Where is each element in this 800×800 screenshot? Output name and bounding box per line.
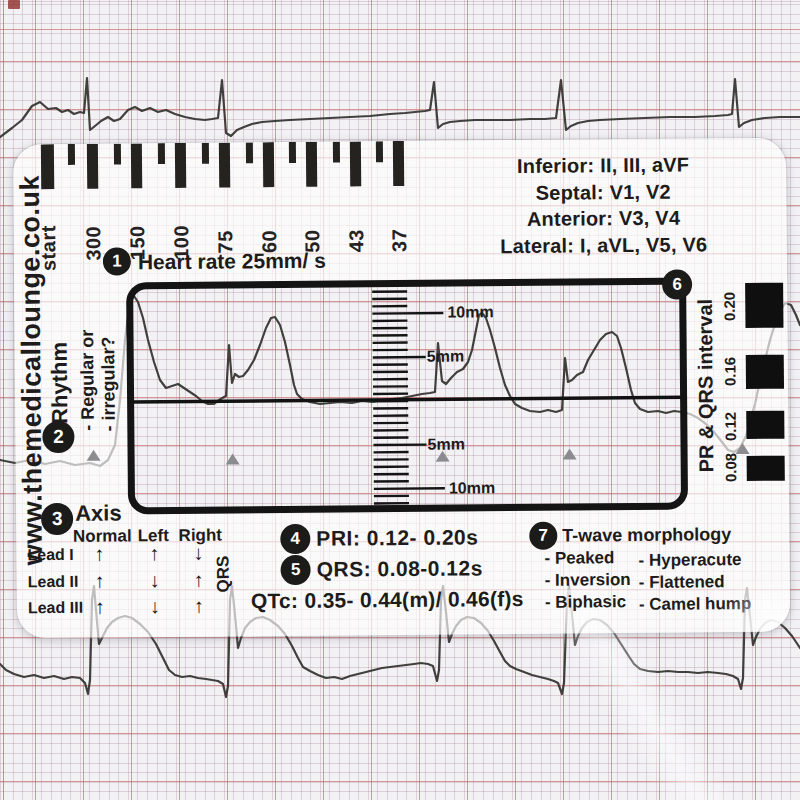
axis-arrow-l1-right: ↓ — [188, 541, 208, 565]
axis-row-lead1: Lead I — [27, 546, 73, 564]
qtc-label: QTc: 0.35- 0.44(m)/ 0.46(f)s — [251, 587, 524, 613]
twave-col1: - Peaked - Inversion - Biphasic — [544, 547, 631, 614]
axis-row-lead2: Lead II — [28, 573, 79, 591]
interval-scale-020: 0.20 — [719, 284, 739, 328]
lead-group-septal: Septal: V1, V2 — [438, 177, 768, 206]
interval-scale-012: 0.12 — [720, 404, 740, 448]
lead-group-inferior: Inferior: II, III, aVF — [438, 151, 768, 180]
step6-badge: 6 — [662, 269, 692, 299]
step2-badge: 2 — [42, 421, 74, 453]
window-scale-5mm-top: 5mm — [427, 347, 465, 365]
rhythm-option-irregular: - irregular? — [96, 319, 121, 447]
lead-group-lateral: Lateral: I, aVL, V5, V6 — [439, 230, 769, 259]
axis-arrow-l1-normal: ↑ — [89, 542, 109, 566]
ruler-tick-label: 300 — [82, 201, 105, 286]
pr-qrs-interval-label: PR & QRS interval — [692, 278, 720, 493]
axis-qrs-label: QRS — [212, 545, 235, 603]
axis-arrow-l2-left: ↓ — [145, 568, 165, 592]
axis-row-lead3: Lead III — [28, 599, 83, 617]
lead-group-anterior: Anterior: V3, V4 — [438, 204, 768, 233]
twave-title: T-wave morphology — [562, 524, 731, 546]
window-scale-5mm-bottom: 5mm — [427, 435, 465, 453]
twave-biphasic: - Biphasic — [545, 591, 631, 614]
ecg-ruler-card: www.themedicallounge.co.uk start30015010… — [12, 137, 791, 640]
step3-badge: 3 — [41, 503, 73, 535]
axis-arrow-l3-right: ↑ — [189, 594, 209, 618]
heart-rate-label: Heart rate 25mm/ s — [138, 247, 326, 277]
axis-arrow-l3-normal: ↑ — [90, 595, 110, 619]
ecg-ruler-photo: www.themedicallounge.co.uk start30015010… — [0, 0, 800, 800]
interval-blocks — [745, 283, 785, 481]
interval-scale-008: 0.08 — [721, 445, 741, 489]
ruler-tick-label: start — [37, 201, 60, 296]
paper-corner-mark — [8, 0, 20, 9]
axis-arrow-l2-normal: ↑ — [90, 569, 110, 593]
twave-inversion: - Inversion — [545, 569, 631, 592]
measurement-window — [126, 278, 688, 515]
lead-groups: Inferior: II, III, aVF Septal: V1, V2 An… — [438, 151, 769, 260]
rhythm-label: Rhythm — [46, 338, 75, 428]
card-corner-glare — [705, 566, 792, 633]
ruler-tick-label: 43 — [345, 198, 368, 283]
step1-badge: 1 — [103, 247, 131, 275]
interval-scale-016: 0.16 — [720, 349, 740, 393]
window-scale-10mm-top: 10mm — [447, 303, 493, 321]
pri-label: PRI: 0.12- 0.20s — [316, 525, 478, 550]
step4-badge: 4 — [280, 524, 310, 554]
axis-arrow-l1-left: ↑ — [144, 541, 164, 565]
ruler-tick-label: 37 — [388, 198, 411, 283]
window-scale-10mm-bottom: 10mm — [449, 479, 495, 497]
axis-arrow-l3-left: ↓ — [145, 594, 165, 618]
step7-badge: 7 — [529, 522, 557, 550]
heart-rate-ruler-ticks — [41, 141, 404, 189]
twave-peaked: - Peaked — [544, 547, 630, 570]
axis-arrow-l2-right: ↑ — [189, 568, 209, 592]
step5-badge: 5 — [280, 555, 310, 585]
qrs-label: QRS: 0.08-0.12s — [316, 556, 482, 581]
axis-label: Axis — [75, 500, 122, 526]
